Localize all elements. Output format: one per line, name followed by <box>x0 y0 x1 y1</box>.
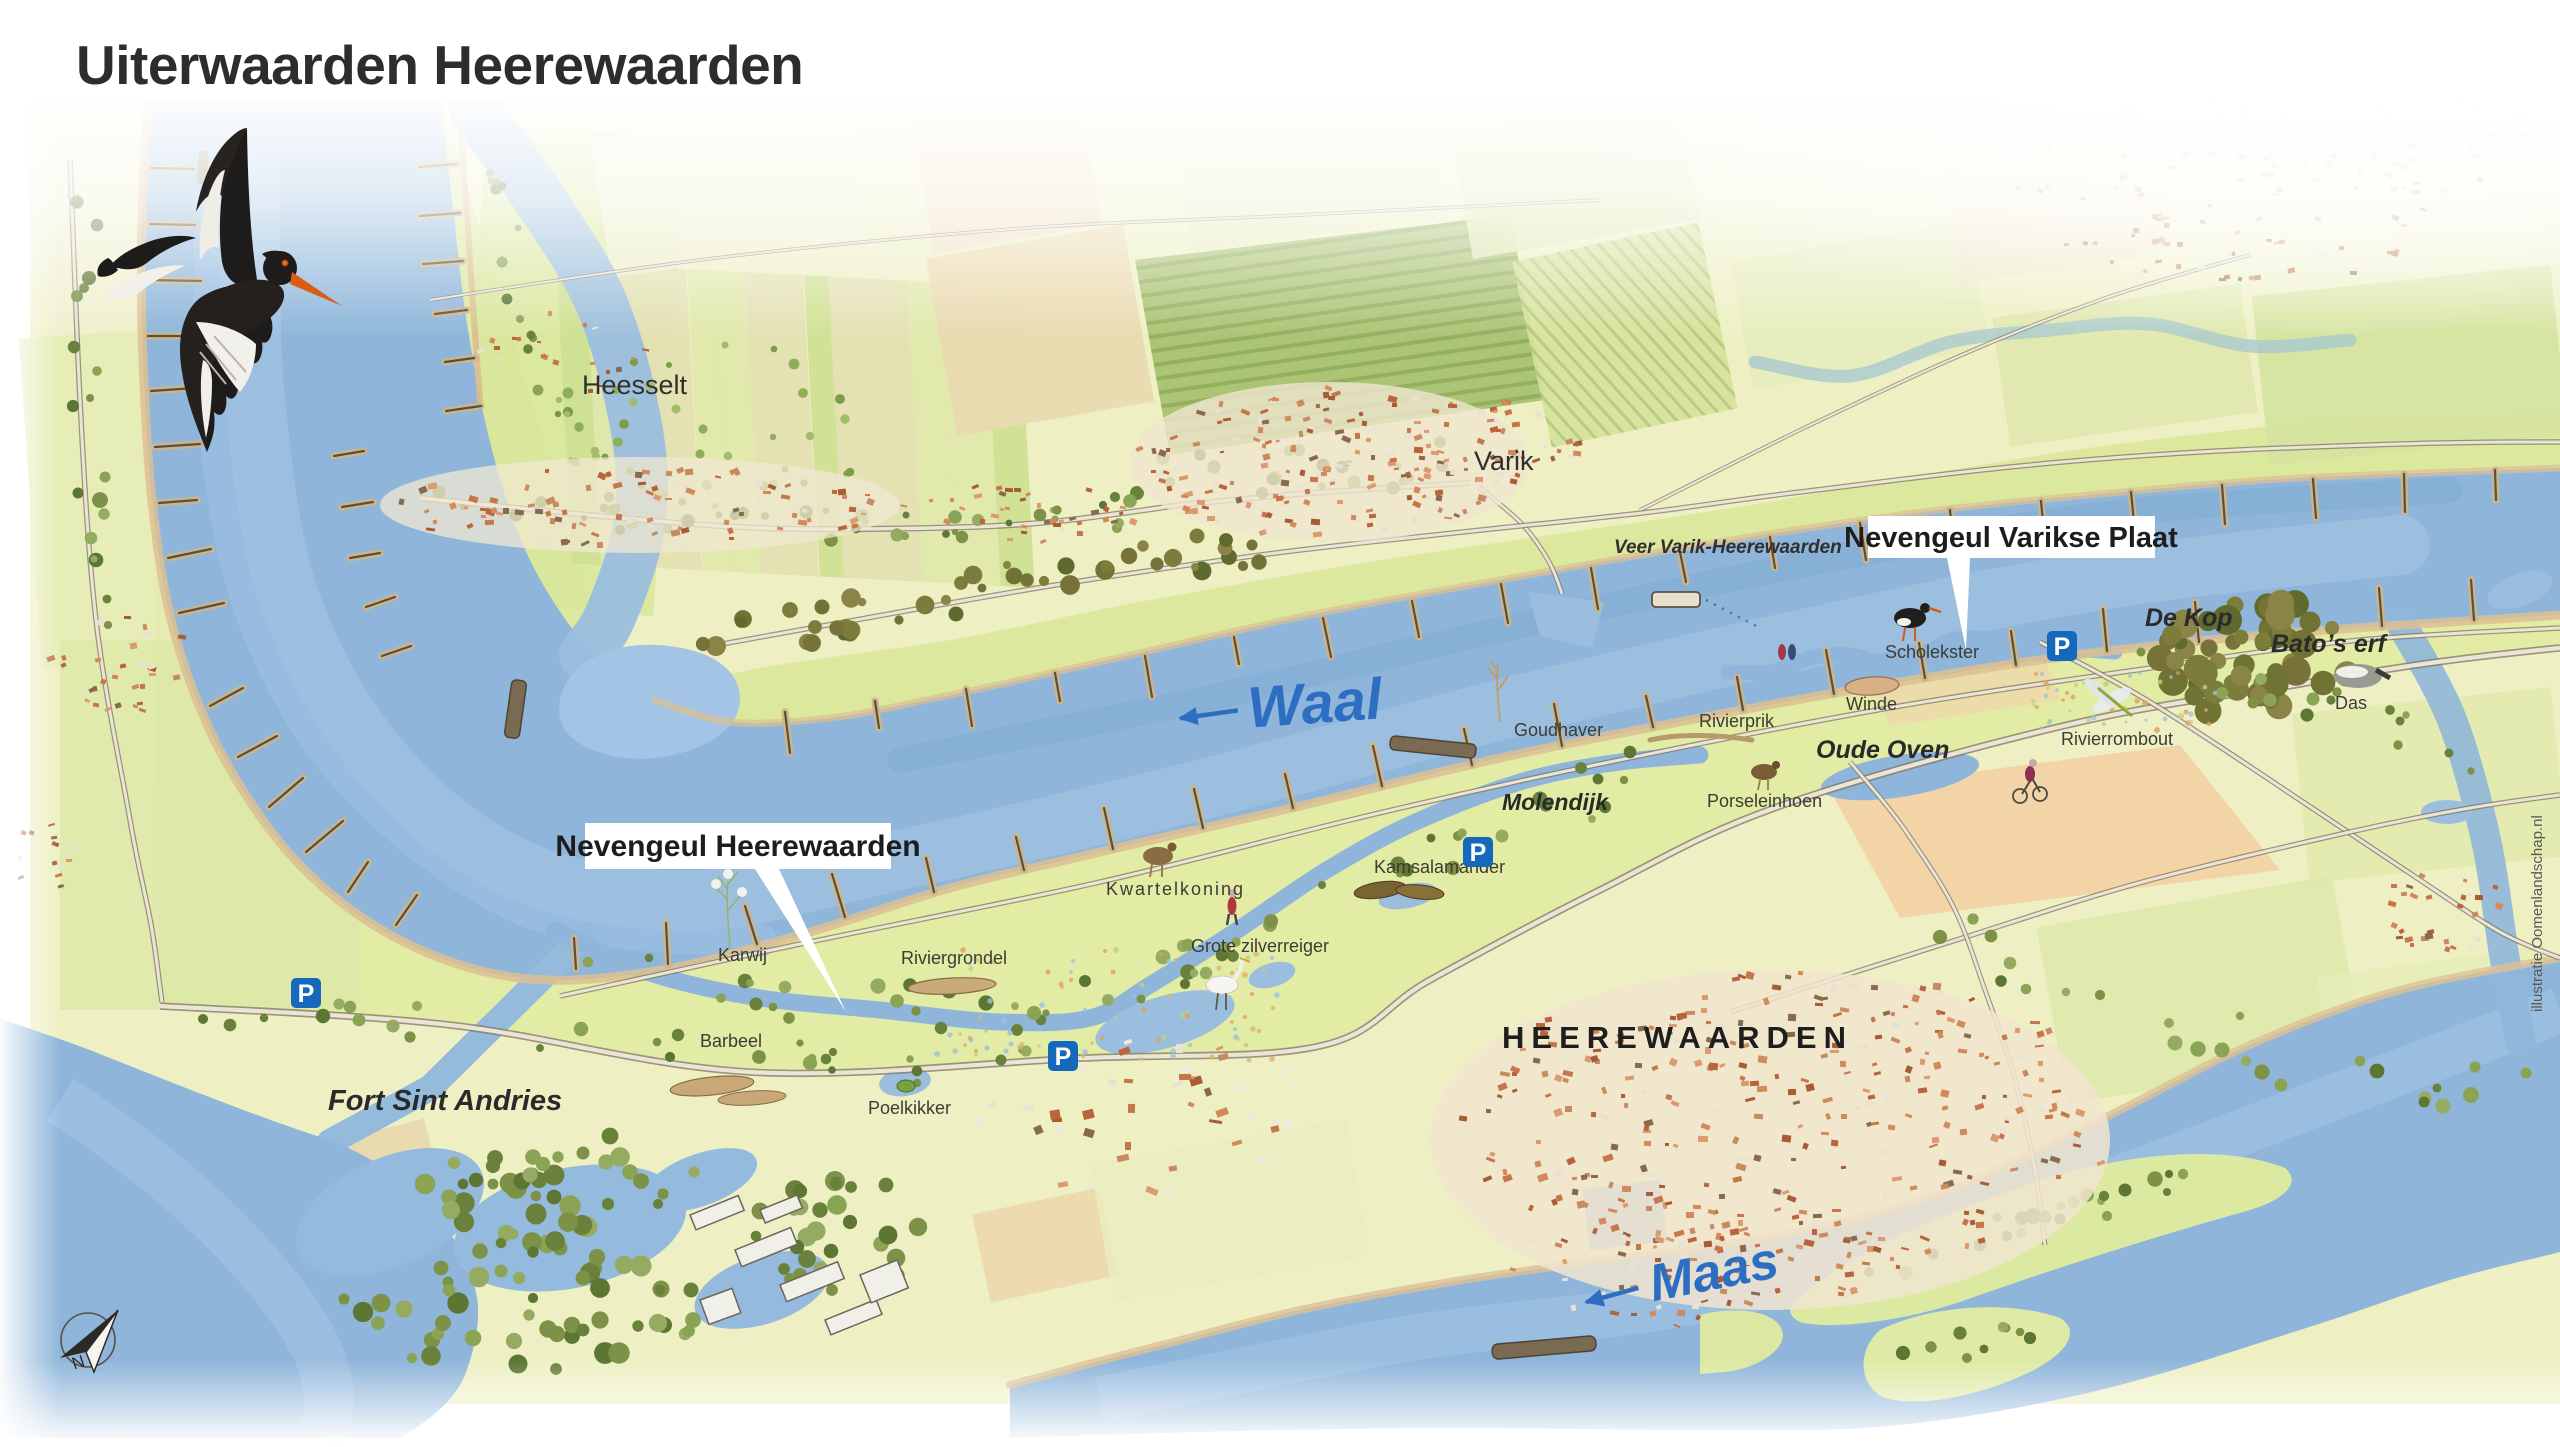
svg-text:Barbeel: Barbeel <box>700 1031 762 1051</box>
svg-text:Molendijk: Molendijk <box>1502 789 1609 815</box>
svg-text:Nevengeul Varikse Plaat: Nevengeul Varikse Plaat <box>1844 522 2178 554</box>
svg-text:Bato’s erf: Bato’s erf <box>2271 630 2389 658</box>
svg-text:Karwij: Karwij <box>718 945 767 965</box>
svg-text:Waal: Waal <box>1245 666 1385 740</box>
svg-text:Oude Oven: Oude Oven <box>1816 736 1949 764</box>
svg-text:P: P <box>1055 1043 1072 1071</box>
svg-text:HEEREWAARDEN: HEEREWAARDEN <box>1502 1020 1853 1055</box>
svg-text:Goudhaver: Goudhaver <box>1514 720 1603 740</box>
svg-text:Kwartelkoning: Kwartelkoning <box>1106 879 1245 899</box>
svg-text:Nevengeul Heerewaarden: Nevengeul Heerewaarden <box>555 830 920 863</box>
svg-text:Riviergrondel: Riviergrondel <box>901 948 1007 968</box>
svg-text:P: P <box>2054 633 2071 661</box>
svg-text:Rivierrombout: Rivierrombout <box>2061 729 2173 749</box>
svg-text:Poelkikker: Poelkikker <box>868 1098 951 1118</box>
svg-text:Varik: Varik <box>1474 446 1534 476</box>
svg-text:Fort Sint Andries: Fort Sint Andries <box>328 1085 562 1117</box>
svg-text:Rivierprik: Rivierprik <box>1699 711 1775 731</box>
svg-text:Das: Das <box>2335 693 2367 713</box>
svg-text:Porseleinhoen: Porseleinhoen <box>1707 791 1822 811</box>
svg-text:P: P <box>1470 839 1487 867</box>
svg-text:Veer Varik-Heerewaarden: Veer Varik-Heerewaarden <box>1614 537 1842 558</box>
svg-text:Uiterwaarden Heerewaarden: Uiterwaarden Heerewaarden <box>76 34 803 96</box>
svg-text:Heesselt: Heesselt <box>582 370 688 400</box>
svg-text:De Kop: De Kop <box>2145 604 2233 632</box>
svg-text:Winde: Winde <box>1846 694 1897 714</box>
svg-text:illustratie Oomenlandschap.nl: illustratie Oomenlandschap.nl <box>2529 815 2546 1012</box>
svg-text:P: P <box>298 980 315 1008</box>
svg-text:Grote zilverreiger: Grote zilverreiger <box>1191 936 1329 956</box>
svg-text:Scholekster: Scholekster <box>1885 642 1979 662</box>
